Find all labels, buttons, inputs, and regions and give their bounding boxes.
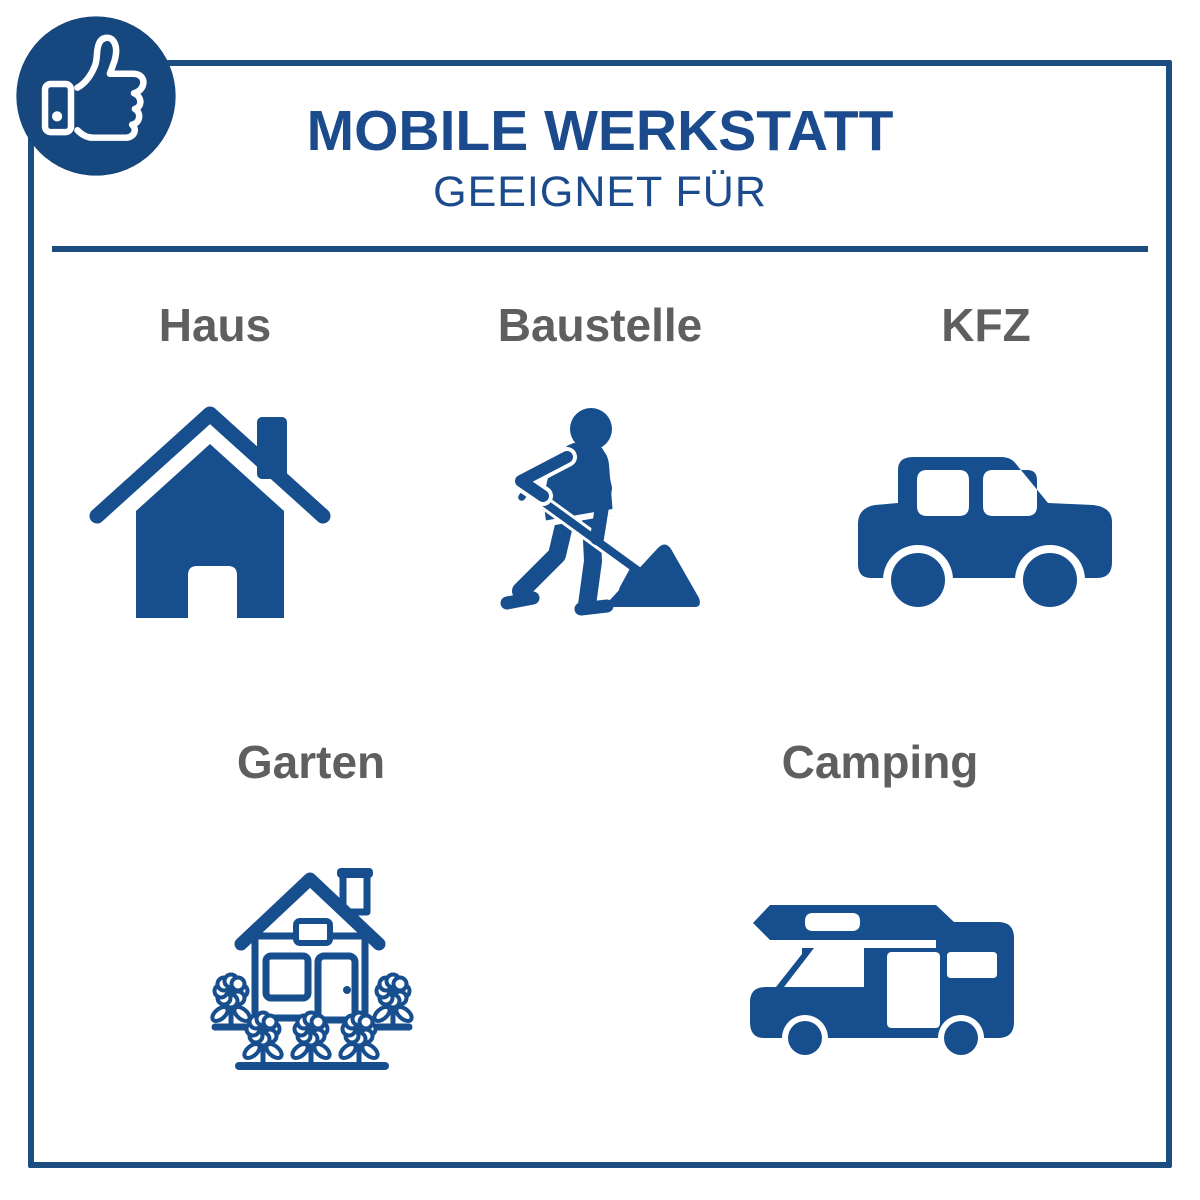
page-title: MOBILE WERKSTATT [0, 98, 1200, 164]
car-icon [855, 448, 1115, 608]
label-baustelle: Baustelle [450, 302, 750, 348]
label-garten: Garten [211, 739, 411, 785]
label-camping: Camping [730, 739, 1030, 785]
construction-worker-icon [497, 393, 712, 648]
page-subtitle: GEEIGNET FÜR [0, 168, 1200, 217]
house-icon [85, 403, 335, 618]
label-haus: Haus [115, 302, 315, 348]
label-kfz: KFZ [886, 302, 1086, 348]
camper-van-icon [742, 892, 1022, 1064]
garden-house-icon [193, 866, 433, 1088]
divider-line [52, 246, 1148, 252]
